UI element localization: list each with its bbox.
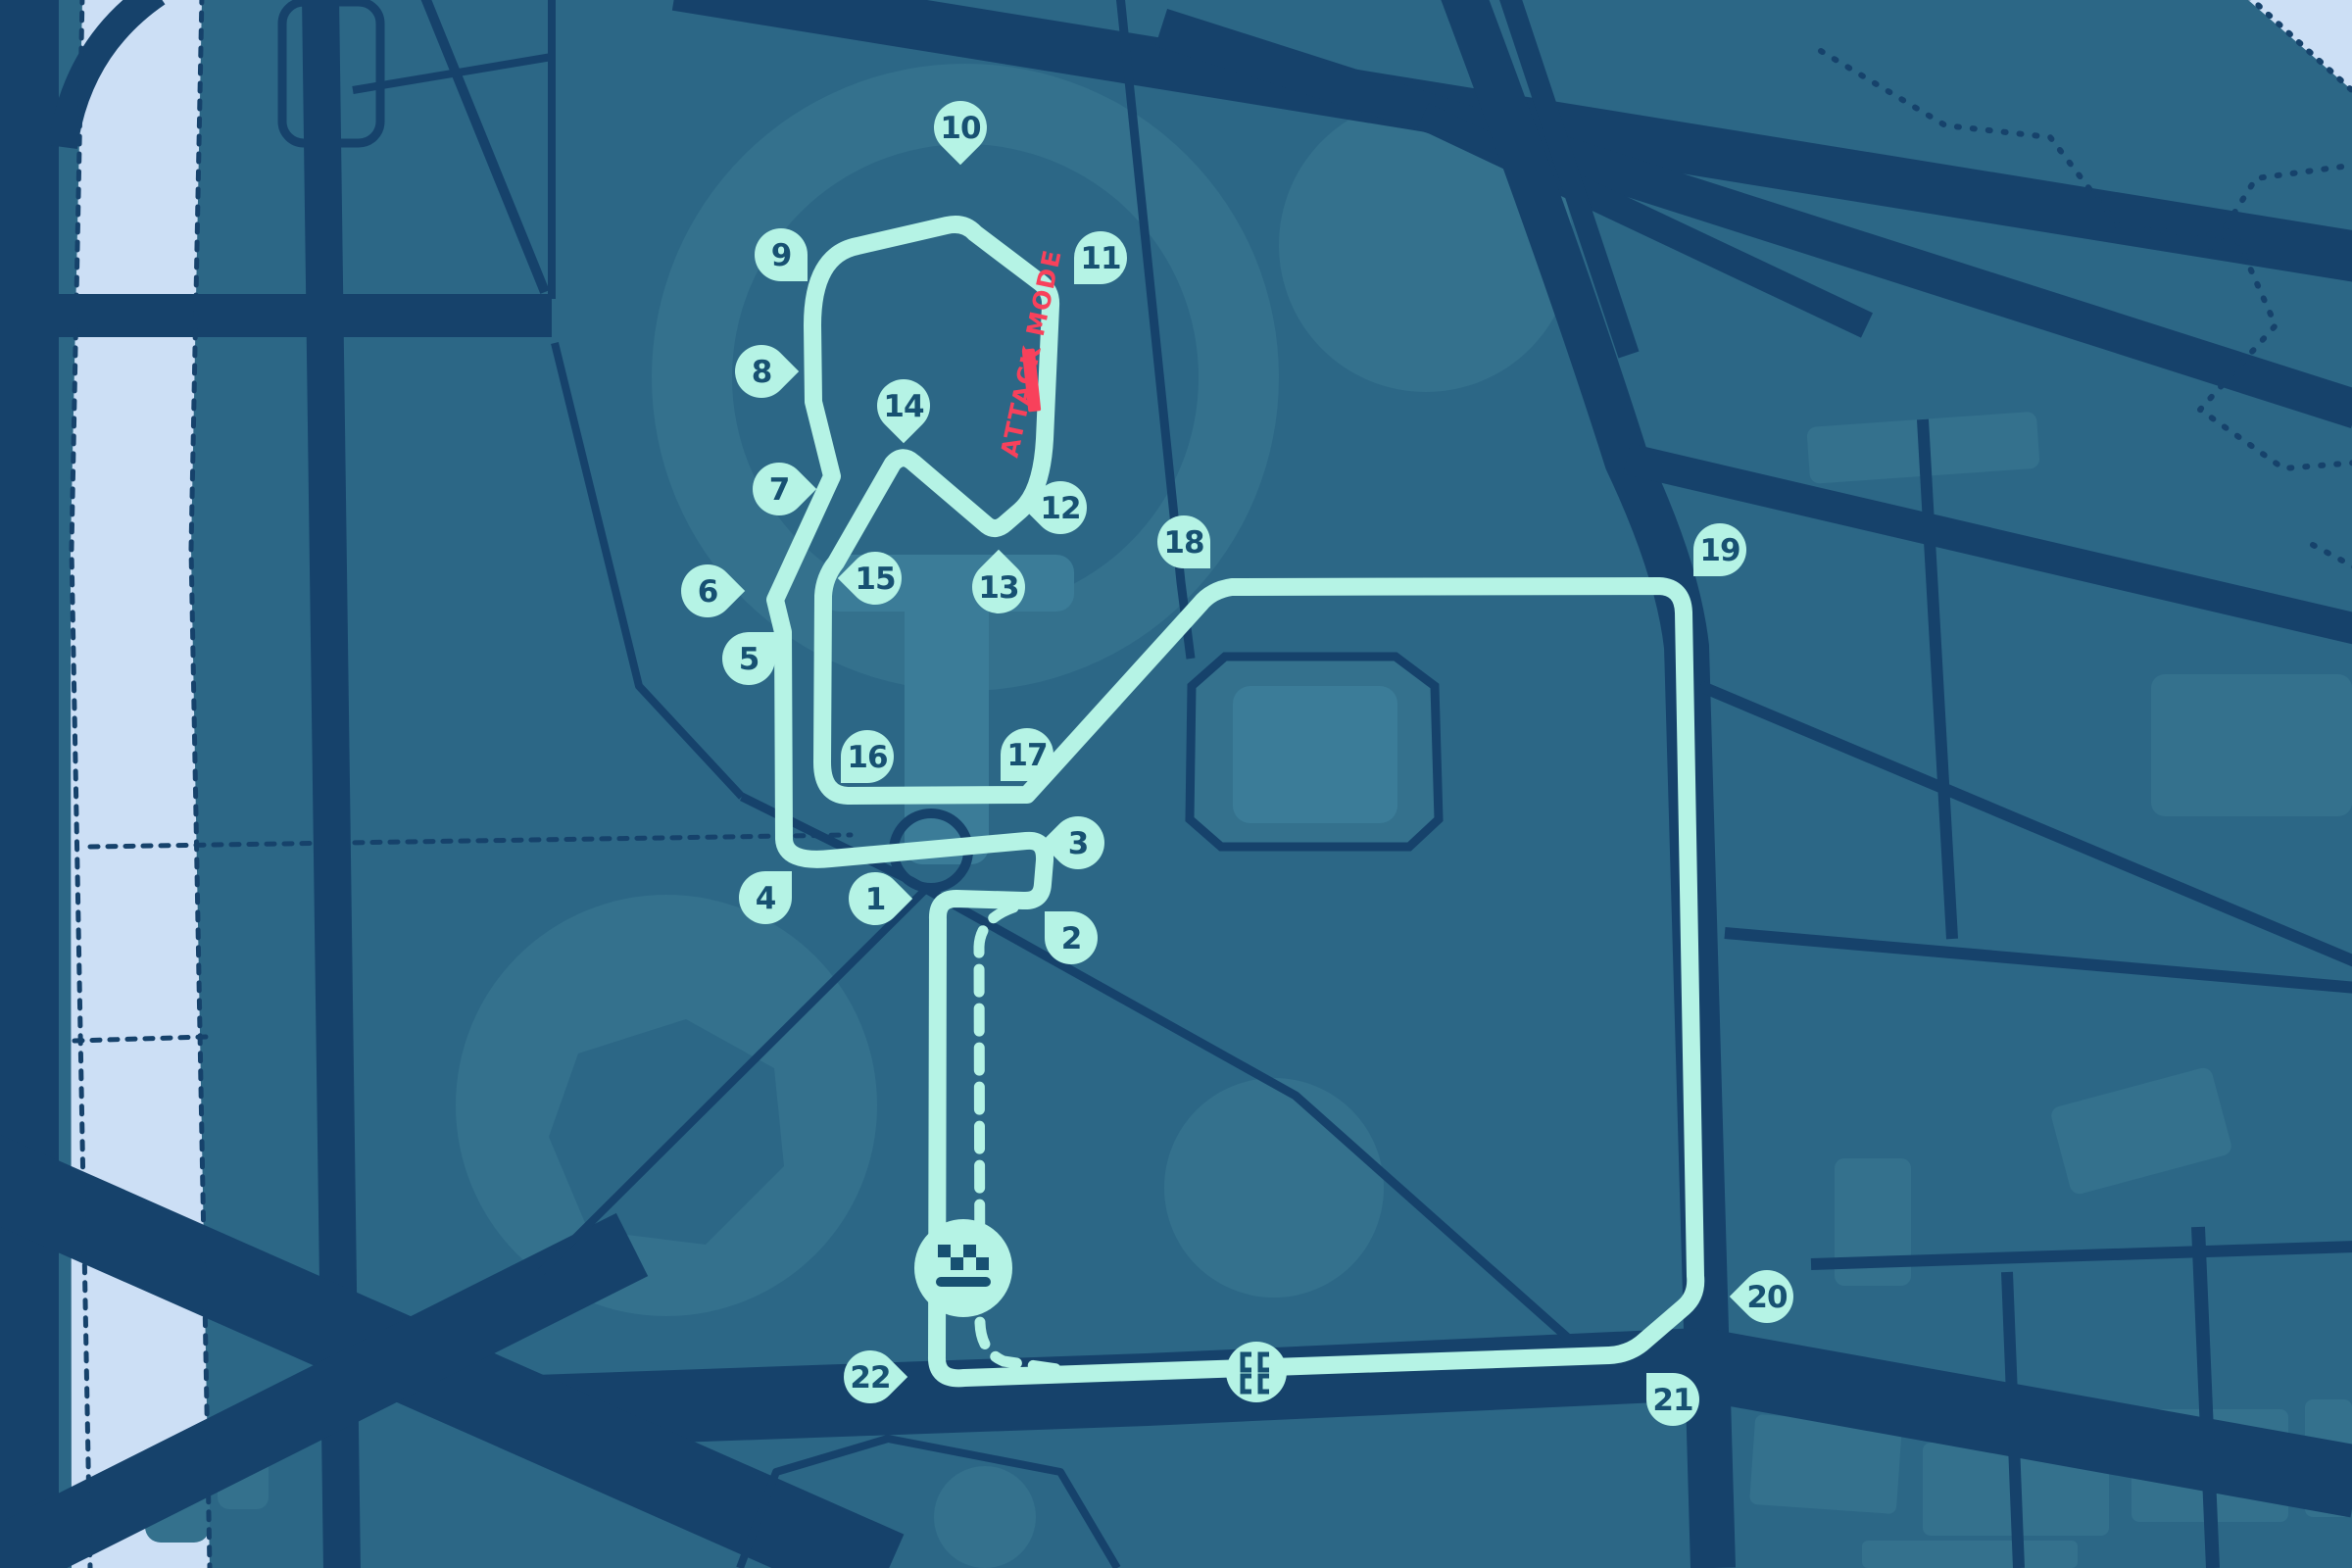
corner-number: 12 (1040, 491, 1080, 526)
corner-number: 1 (865, 882, 886, 917)
corner-marker-17: 17 (1001, 728, 1053, 781)
map-shape (1862, 1541, 2078, 1568)
corner-number: 8 (752, 355, 772, 390)
corner-number: 19 (1699, 533, 1739, 568)
pit-boost-marker (1226, 1342, 1287, 1402)
corner-number: 4 (756, 881, 776, 916)
corner-number: 2 (1061, 921, 1082, 956)
corner-marker-16: 16 (841, 730, 894, 783)
corner-marker-5: 5 (722, 632, 775, 685)
corner-number: 20 (1746, 1280, 1788, 1315)
map-shape (936, 1277, 991, 1287)
corner-marker-4: 4 (739, 871, 792, 924)
corner-marker-21: 21 (1646, 1373, 1699, 1426)
corner-number: 16 (847, 740, 887, 775)
corner-number: 7 (769, 472, 790, 508)
corner-number: 15 (855, 562, 895, 597)
river (71, 0, 210, 1568)
corner-number: 14 (883, 389, 924, 424)
start-finish-marker (914, 1219, 1012, 1317)
corner-number: 18 (1163, 525, 1203, 561)
corner-marker-9: 9 (755, 228, 808, 281)
corner-number: 11 (1080, 241, 1120, 276)
park-disc-s (1164, 1078, 1384, 1298)
map-shape (951, 1257, 963, 1270)
corner-number: 21 (1652, 1383, 1692, 1418)
map-shape (963, 1245, 976, 1257)
corner-marker-11: 11 (1074, 231, 1127, 284)
corner-number: 22 (850, 1360, 890, 1396)
corner-marker-2: 2 (1045, 911, 1098, 964)
basemap (0, 0, 2352, 1568)
corner-number: 5 (739, 642, 759, 677)
corner-number: 9 (771, 238, 792, 273)
stadium-field (1233, 686, 1397, 823)
corner-marker-18: 18 (1157, 515, 1210, 568)
corner-number: 17 (1006, 738, 1047, 773)
map-shape (938, 1245, 951, 1257)
corner-marker-19: 19 (1693, 523, 1746, 576)
pit-boost-circle (1226, 1342, 1287, 1402)
map-shape (934, 1466, 1036, 1568)
corner-number: 6 (698, 574, 718, 610)
corner-number: 10 (940, 111, 981, 146)
map-shape (2151, 674, 2352, 816)
stadium (1190, 657, 1439, 847)
circuit-map-page: ATTACK MODE 1234567891011121314151617181… (0, 0, 2352, 1568)
circuit-map: ATTACK MODE 1234567891011121314151617181… (0, 0, 2352, 1568)
map-shape (976, 1257, 989, 1270)
corner-number: 3 (1068, 826, 1089, 861)
corner-number: 13 (978, 570, 1018, 606)
